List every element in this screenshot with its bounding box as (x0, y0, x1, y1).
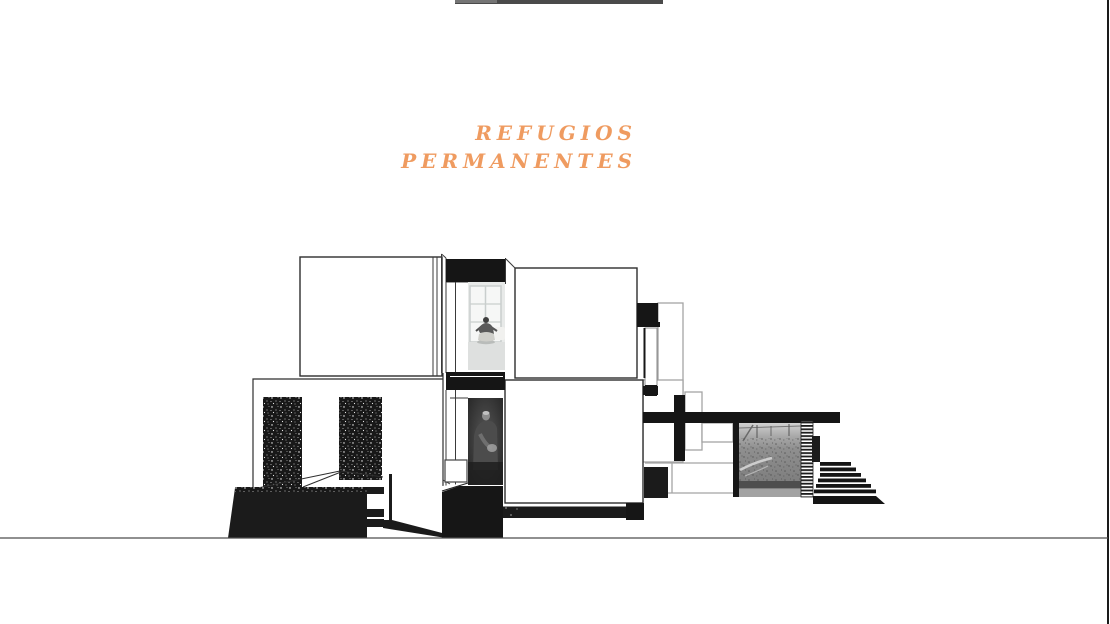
roof-column (674, 395, 685, 461)
title-line-2: PERMANENTES (401, 147, 637, 175)
stairs (813, 462, 885, 504)
upper-lintel (446, 259, 505, 282)
construction-boxes (643, 303, 733, 493)
architecture-section-svg (0, 0, 1110, 624)
hatched-strip (801, 421, 813, 497)
upper-middle-box (515, 268, 637, 378)
porch-pillar-left (263, 397, 302, 489)
garden-vines-photo (739, 423, 801, 497)
upper-room-box (300, 257, 442, 376)
floor-slab (446, 372, 505, 390)
porch-pillar-right (339, 397, 382, 480)
right-border (1107, 0, 1109, 624)
slide-canvas: REFUGIOS PERMANENTES (0, 0, 1110, 624)
workshop-figure-photo (468, 398, 503, 485)
title-line-1: REFUGIOS (401, 119, 637, 147)
top-edge-bar (455, 0, 663, 4)
lower-main-box (505, 380, 643, 503)
base-block-center (442, 486, 503, 538)
slide-title: REFUGIOS PERMANENTES (401, 119, 637, 175)
meditation-room-photo (468, 282, 505, 370)
